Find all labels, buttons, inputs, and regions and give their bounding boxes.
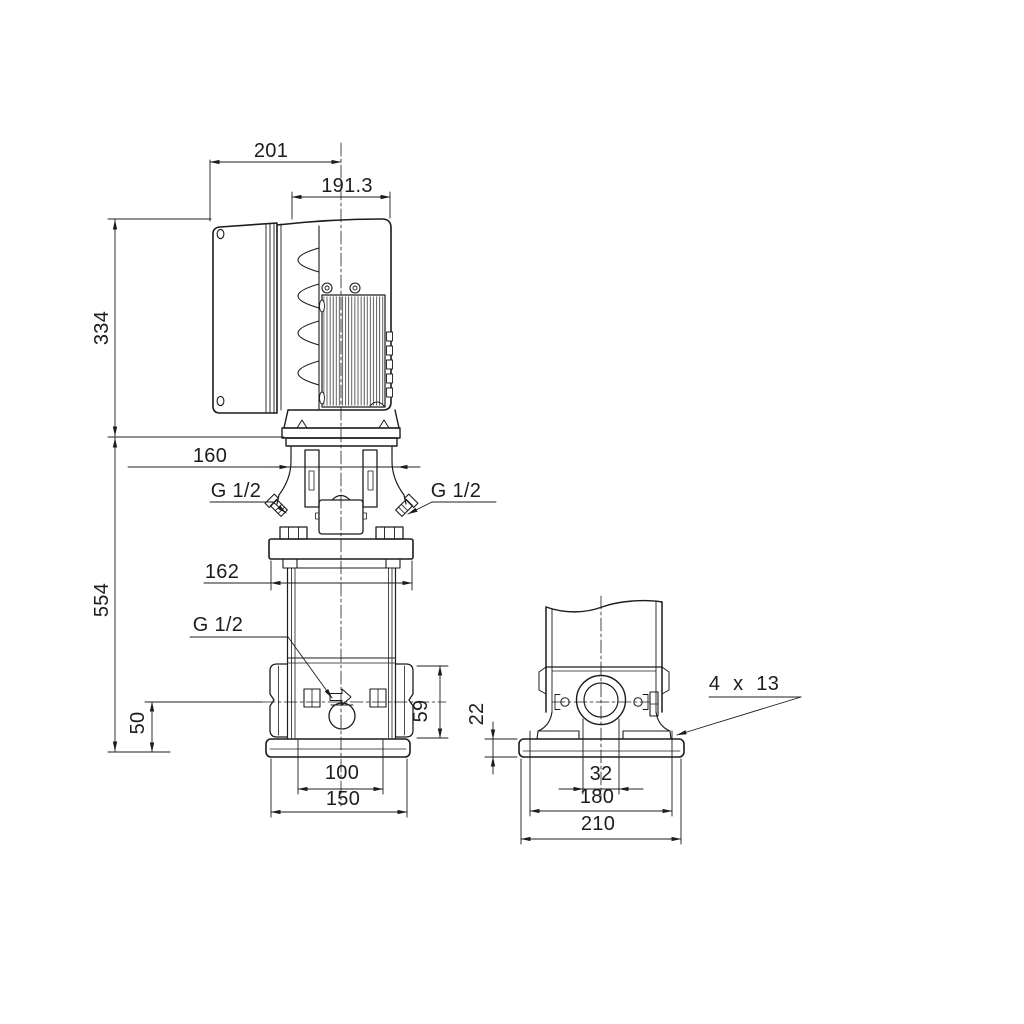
pump-head: [265, 446, 418, 568]
dim-label-base-plate-height: 22: [467, 703, 487, 726]
port-label-drain: G 1/2: [193, 615, 243, 635]
dim-label-port-bore: 32: [590, 764, 613, 784]
dim-label-end-bolt-spacing: 180: [580, 787, 614, 807]
dim-label-pump-height: 554: [92, 583, 112, 617]
control-box: [213, 223, 277, 413]
pump-dimension-drawing: [0, 0, 1024, 1024]
dim-label-port-axis-height: 50: [128, 712, 148, 735]
dim-label-end-base-width: 210: [581, 814, 615, 834]
dim-label-motor-width: 191.3: [321, 176, 373, 196]
note-label-bolt-holes: 4 x 13: [709, 674, 779, 694]
chamber-stack: [270, 568, 413, 738]
dim-label-base-bolt-spacing: 100: [325, 763, 359, 783]
pump-base-side: [266, 739, 410, 757]
gauge-plug-left: [265, 494, 289, 518]
pump-base-end: [519, 739, 684, 757]
gauge-plug-right: [394, 494, 418, 518]
dim-label-base-width: 150: [326, 789, 360, 809]
dim-label-top-width: 201: [254, 141, 288, 161]
motor: [277, 219, 393, 410]
drawing-canvas: 201 191.3 334 160 554 162 50 59 100 150 …: [0, 0, 1024, 1024]
dim-label-motor-height: 334: [92, 311, 112, 345]
leader-lines: [190, 502, 801, 735]
port-label-gauge-right: G 1/2: [431, 481, 481, 501]
dim-label-head-flange-width: 162: [205, 562, 239, 582]
dim-label-port-flange-height: 59: [411, 700, 431, 723]
dim-label-coupling-width: 160: [193, 446, 227, 466]
dimension-lines: [108, 160, 801, 844]
port-label-gauge-left: G 1/2: [211, 481, 261, 501]
drain-plug: [329, 703, 355, 729]
end-view: [519, 601, 684, 757]
